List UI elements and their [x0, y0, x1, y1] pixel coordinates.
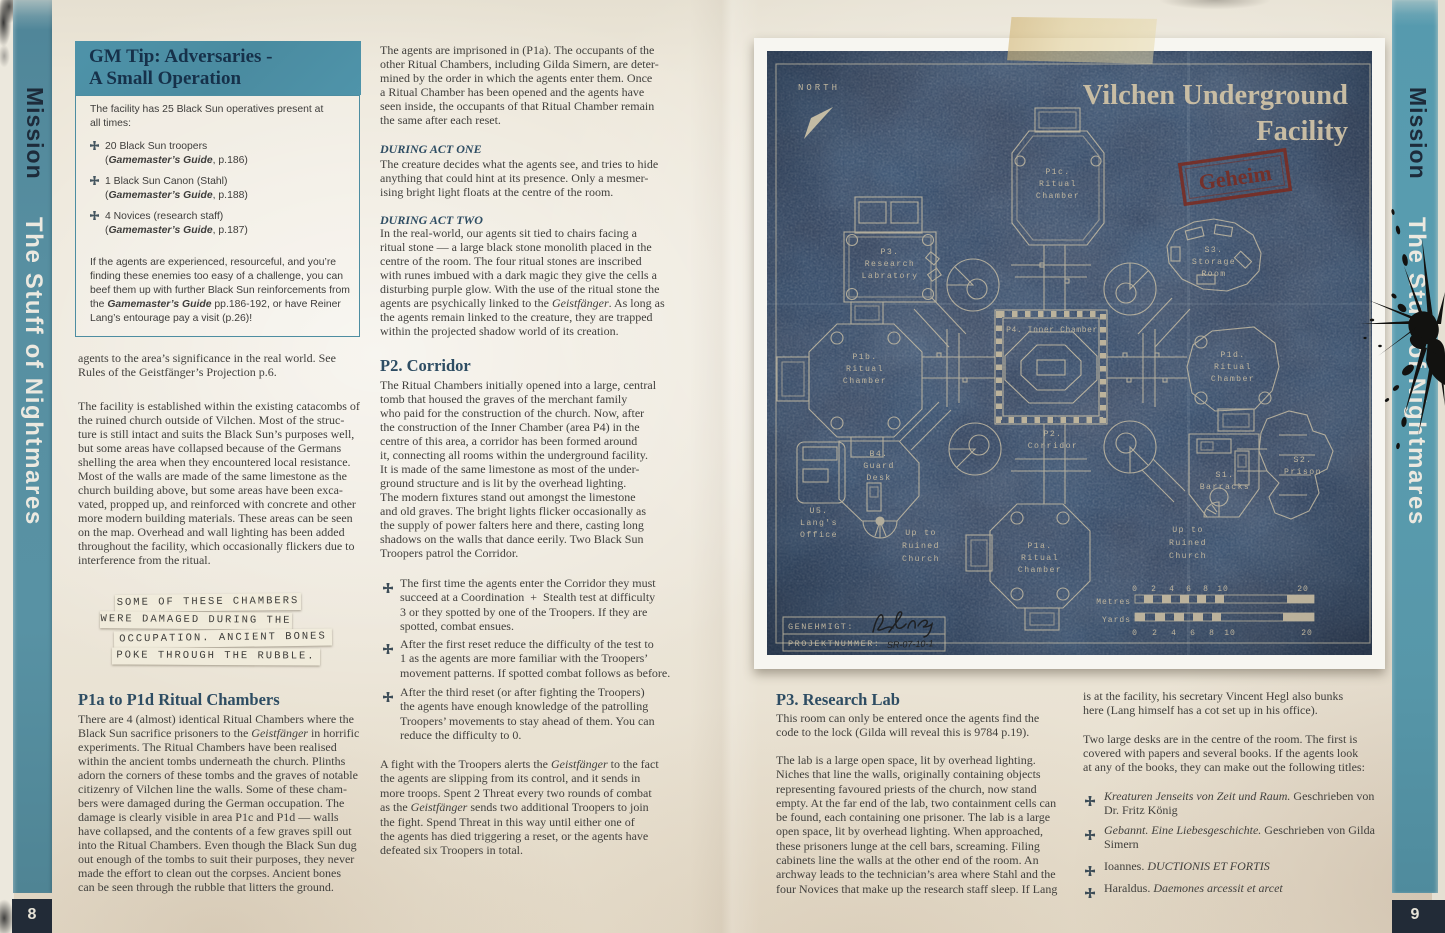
svg-text:4: 4 — [1169, 585, 1175, 594]
svg-text:Ritual: Ritual — [1039, 179, 1077, 189]
svg-text:Ritual: Ritual — [1214, 362, 1252, 372]
svg-text:Desk: Desk — [866, 473, 891, 483]
svg-text:8: 8 — [1209, 629, 1215, 638]
svg-text:Metres: Metres — [1096, 598, 1131, 607]
svg-text:GENEHMIGT:: GENEHMIGT: — [788, 622, 854, 632]
svg-text:P1c.: P1c. — [1045, 168, 1070, 177]
svg-text:10: 10 — [1217, 585, 1229, 594]
svg-text:Guard: Guard — [863, 461, 895, 471]
svg-text:0: 0 — [1132, 585, 1138, 594]
svg-text:20: 20 — [1297, 585, 1309, 594]
svg-text:Labratory: Labratory — [862, 271, 919, 281]
svg-text:S3.: S3. — [1205, 246, 1224, 255]
svg-text:10: 10 — [1224, 629, 1236, 638]
svg-text:S2.: S2. — [1294, 456, 1313, 465]
svg-text:NORTH: NORTH — [798, 83, 840, 93]
svg-text:20: 20 — [1301, 629, 1313, 638]
svg-text:Chamber: Chamber — [1018, 565, 1062, 575]
svg-text:P1b.: P1b. — [852, 352, 877, 362]
svg-text:Chamber: Chamber — [843, 376, 887, 386]
svg-text:Research: Research — [865, 259, 916, 269]
svg-text:Ruined: Ruined — [902, 541, 940, 551]
svg-text:P1a.: P1a. — [1027, 542, 1052, 551]
svg-text:6: 6 — [1190, 629, 1196, 638]
svg-text:Facility: Facility — [1256, 116, 1348, 147]
svg-text:Vilchen Underground: Vilchen Underground — [1083, 80, 1348, 111]
svg-text:SR-07-10-1: SR-07-10-1 — [887, 638, 934, 650]
svg-text:6: 6 — [1186, 585, 1192, 594]
svg-text:0: 0 — [1132, 629, 1138, 638]
svg-text:Room: Room — [1201, 270, 1226, 279]
svg-text:Church: Church — [902, 554, 940, 564]
svg-text:8: 8 — [1203, 585, 1209, 594]
svg-text:2: 2 — [1152, 629, 1158, 638]
svg-text:Chamber: Chamber — [1211, 374, 1255, 384]
svg-text:Lang's: Lang's — [800, 518, 838, 528]
svg-text:S1.: S1. — [1216, 471, 1235, 480]
svg-text:P3.: P3. — [881, 248, 900, 257]
svg-text:Corridor: Corridor — [1028, 441, 1079, 451]
svg-text:4: 4 — [1171, 629, 1177, 638]
svg-text:Up to: Up to — [1172, 526, 1204, 535]
svg-text:PROJEKTNUMMER:: PROJEKTNUMMER: — [788, 639, 880, 649]
svg-text:Office: Office — [800, 530, 838, 540]
svg-text:Barracks: Barracks — [1200, 482, 1251, 492]
svg-text:U5.: U5. — [810, 507, 829, 516]
svg-text:Ritual: Ritual — [1021, 553, 1059, 563]
svg-text:Chamber: Chamber — [1036, 191, 1080, 201]
svg-text:P4. Inner Chamber: P4. Inner Chamber — [1006, 326, 1098, 335]
svg-text:Up to: Up to — [905, 529, 937, 538]
svg-text:Prison: Prison — [1284, 467, 1322, 477]
svg-text:P1d.: P1d. — [1220, 350, 1245, 360]
svg-text:Church: Church — [1169, 551, 1207, 561]
svg-text:Ruined: Ruined — [1169, 538, 1207, 548]
svg-text:Ritual: Ritual — [846, 364, 884, 374]
svg-text:2: 2 — [1151, 585, 1157, 594]
svg-text:B4.: B4. — [870, 450, 889, 459]
svg-text:P2.: P2. — [1044, 430, 1063, 439]
svg-text:Storage: Storage — [1192, 258, 1236, 267]
svg-text:Yards: Yards — [1102, 616, 1131, 625]
